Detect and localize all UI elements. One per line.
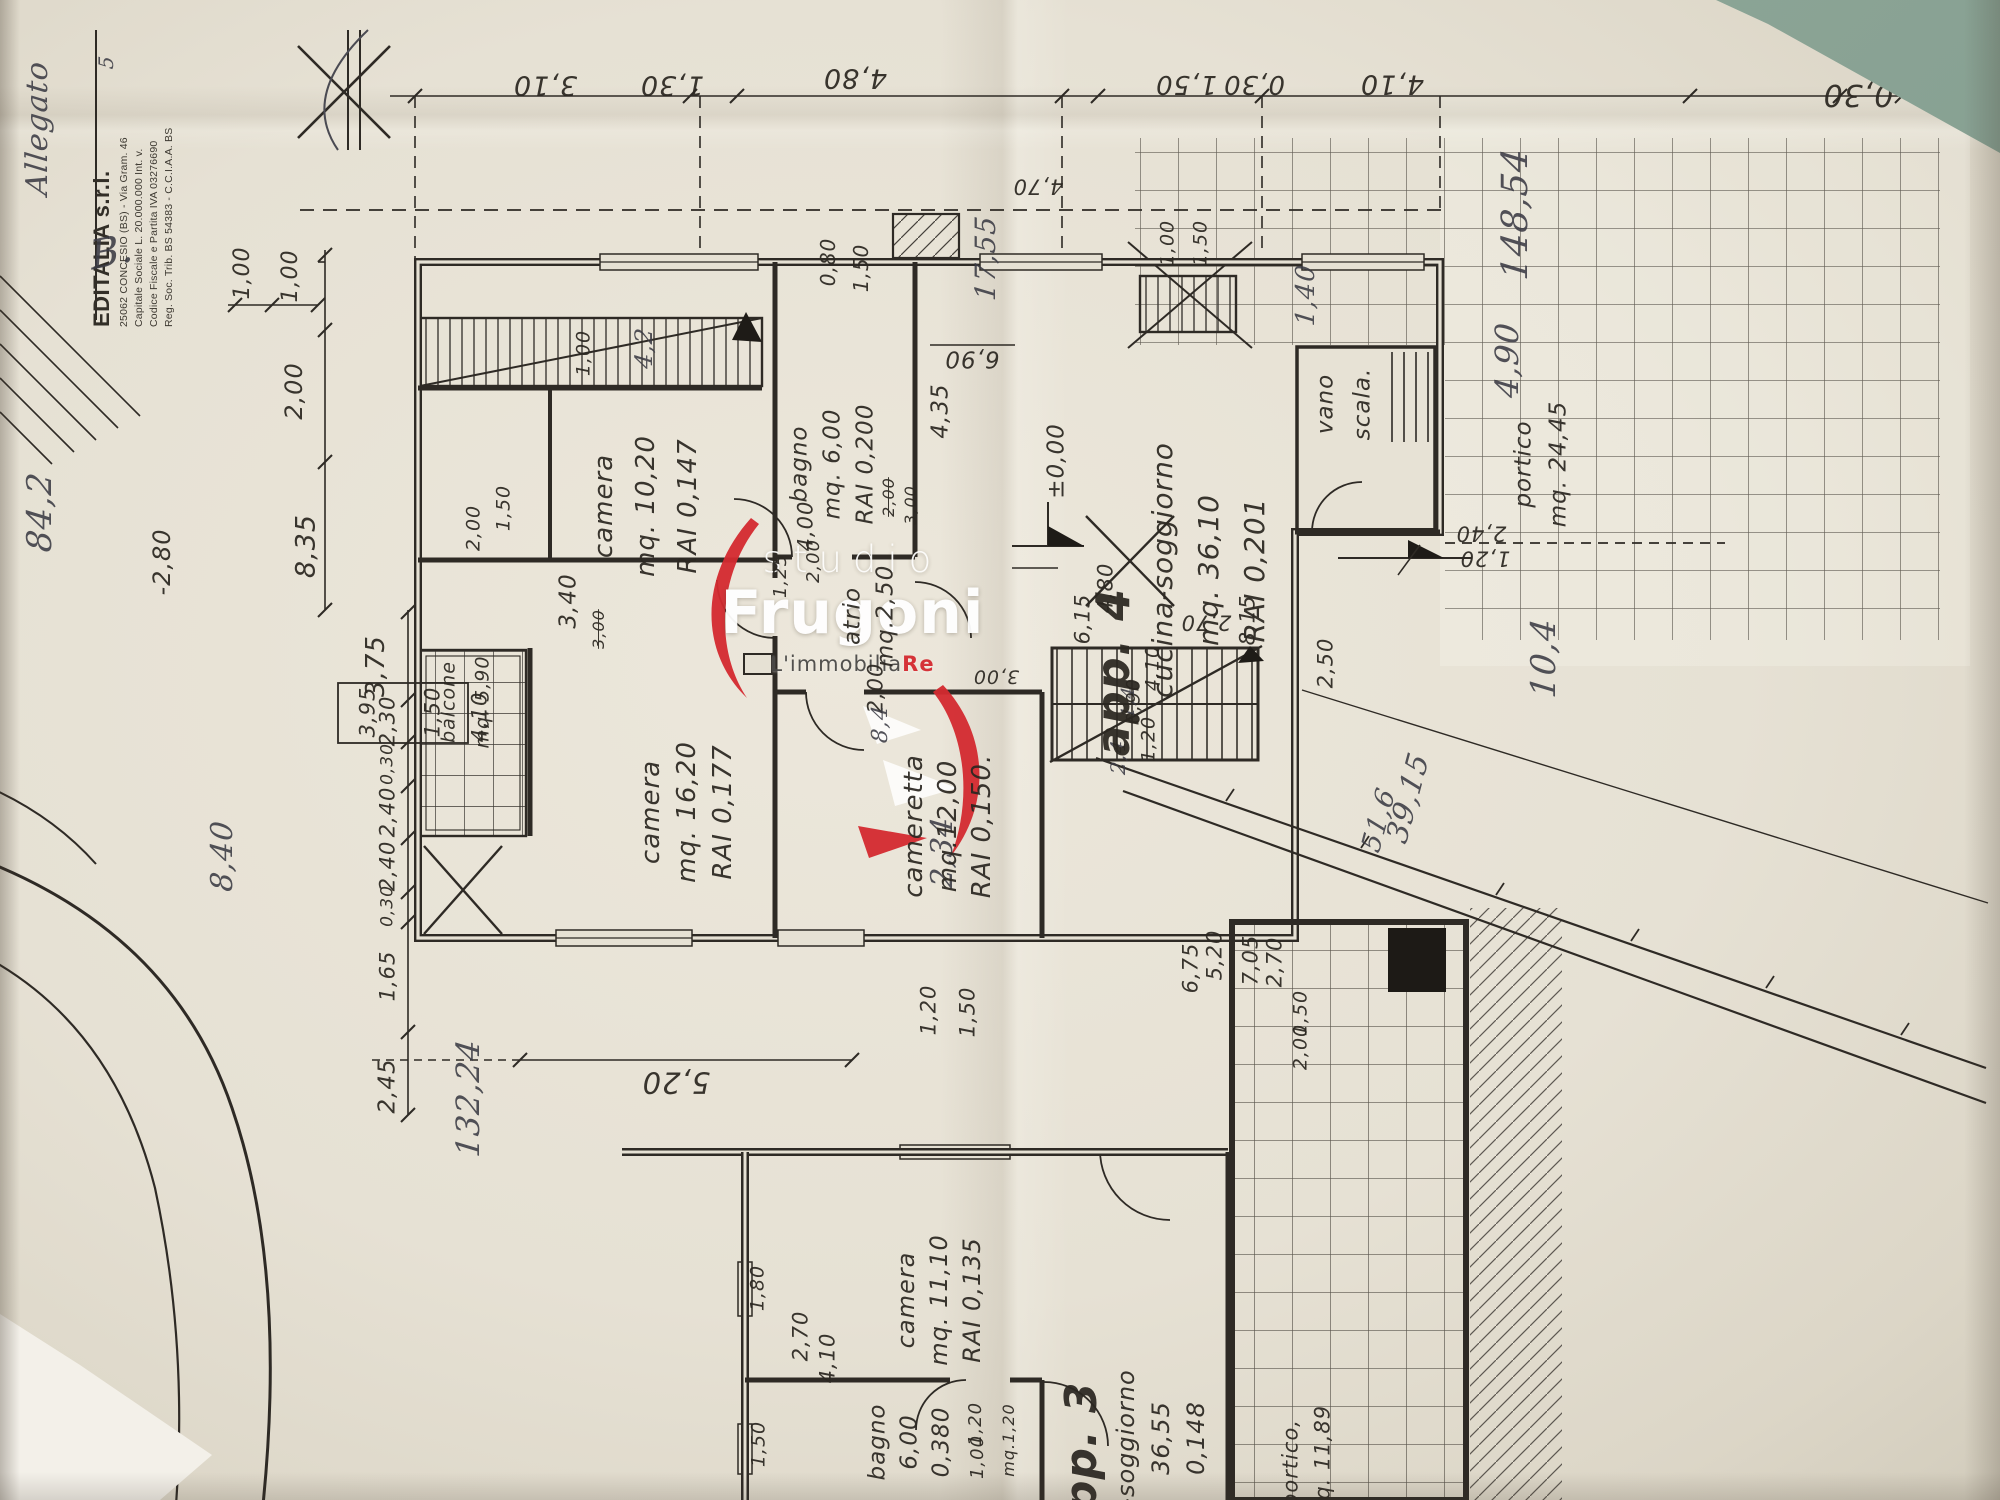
dimension-label: 1,20: [1140, 716, 1159, 762]
dimension-label: 3,95: [358, 687, 379, 738]
dimension-label: 2,70: [1265, 937, 1286, 988]
portico-lower-tile-hatch: [1232, 922, 1466, 1500]
room-label-bagno: bagno: [789, 426, 812, 503]
dimension-label: 2,45: [377, 1058, 400, 1113]
room-label-portico-upper: mq. 24,45: [1548, 401, 1571, 527]
room-label-cameretta: RAI 0,150.: [969, 754, 995, 898]
room-label-bagno: mq. 6,00: [822, 409, 845, 520]
chimney-block: [893, 214, 959, 258]
handwritten-note: 8,4: [870, 704, 892, 744]
dimension-label: 3,40: [558, 573, 581, 628]
dimension-label: 4,00: [796, 501, 817, 552]
room-label-vano-scala: vano: [1315, 374, 1338, 434]
dimension-label: 2,00: [881, 477, 897, 517]
room-label-portico-upper: portico: [1513, 420, 1536, 507]
room-label-camera-11: RAI 0,135: [960, 1237, 984, 1363]
dimension-label: 2,50: [1316, 638, 1337, 689]
room-label-cameretta: mq.12,00: [935, 760, 961, 893]
handwritten-note: 4,2: [632, 326, 656, 370]
room-label-balcone: mq. 5,90: [474, 656, 493, 749]
dimension-label: 4,10: [818, 1333, 839, 1384]
handwritten-note: B.: [88, 227, 135, 276]
dimension-label: 1,50: [851, 244, 871, 293]
editalia-stamp: EDITALIA s.r.l. 25062 CONCESIO (BS) - Vi…: [89, 41, 241, 327]
handwritten-note: 17,55: [972, 214, 1000, 302]
dimension-label: 2,40: [1456, 523, 1507, 544]
handwritten-note: 4,90: [1491, 321, 1523, 400]
scan-shadow-right: [1964, 0, 2000, 1500]
dimension-label: 1,20: [919, 985, 940, 1036]
room-label-cucina-soggiorno: cucina-soggiorno: [1149, 442, 1177, 698]
dimension-label: 2,30: [378, 696, 399, 747]
dimension-label: 1,00: [280, 250, 302, 303]
dimension-label: 6,75: [1181, 943, 1202, 994]
room-label-cameretta: cameretta: [901, 754, 927, 898]
stamp-company: EDITALIA s.r.l.: [89, 41, 115, 327]
dimension-label: 3,00: [591, 609, 607, 649]
dimension-label: 1,50: [1155, 71, 1217, 97]
dimension-label: 1,50: [958, 987, 979, 1038]
dimension-label: 3,10: [513, 72, 577, 99]
room-label-bagno: RAI 0,200: [855, 404, 878, 525]
dimension-label: 8,35: [293, 514, 320, 578]
scan-shadow-left: [0, 0, 20, 1500]
handwritten-note: 8,40: [208, 819, 238, 893]
dimension-label: 4,10: [1360, 71, 1424, 98]
room-label-bagno-app3: bagno: [867, 1404, 890, 1481]
dimension-label: 2,00: [465, 505, 484, 551]
room-label-camera-16: camera: [638, 760, 664, 864]
dimension-label: mq.1,20: [1001, 1403, 1017, 1476]
scanned-floorplan-photo: EDITALIA s.r.l. 25062 CONCESIO (BS) - Vi…: [0, 0, 2000, 1500]
room-label-vano-scala: scala.: [1352, 368, 1375, 441]
dark-opening: [1388, 928, 1446, 992]
logo-studio-text: studio: [655, 538, 1050, 581]
grate: [1140, 276, 1236, 332]
room-label-atrio: mq.2,50: [875, 565, 898, 668]
dimension-label: 1,00: [1159, 220, 1178, 266]
room-label-soggiorno-app3: 0,148: [1184, 1401, 1208, 1475]
room-label-cucina-soggiorno: mq. 36,10: [1195, 494, 1223, 646]
handwritten-note: Allegato: [23, 60, 53, 197]
room-label-cucina-soggiorno: RAI 0,201: [1241, 498, 1269, 643]
dimension-label: 1,50: [750, 1421, 769, 1467]
dimension-label: 1,25: [772, 554, 790, 598]
dimension-label: ±0,00: [1046, 423, 1069, 498]
room-label-camera-16: mq. 16,20: [674, 741, 700, 883]
dimension-label: 4,70: [1013, 176, 1064, 197]
room-label-camera-10: camera: [591, 454, 617, 558]
room-label-soggiorno-app3: 36,55: [1149, 1401, 1173, 1475]
room-label-camera-11: camera: [894, 1252, 918, 1349]
dimension-label: 2,40: [378, 841, 399, 892]
dimension-label: 7,05: [1241, 935, 1262, 986]
dimension-label: 6,90: [944, 347, 999, 370]
stamp-address-lines: 25062 CONCESIO (BS) - Via Gram. 46Capita…: [118, 41, 175, 327]
dimension-label: 2,40: [378, 787, 399, 838]
dimension-label: 2,70: [791, 1311, 812, 1362]
stamp-line: Capitale Sociale L. 20.000.000 Int. v.: [133, 41, 145, 327]
room-label-balcone: balcone: [440, 661, 459, 743]
room-label-atrio: atrio: [842, 587, 865, 645]
dimension-label: 1,65: [378, 951, 399, 1002]
handwritten-note: 1,40: [1293, 263, 1319, 328]
dimension-label: 2,00: [1292, 1024, 1311, 1070]
scan-shadow-bottom: [0, 1472, 2000, 1500]
dimension-label: 3,00: [973, 667, 1019, 686]
handwritten-note: 132,24: [452, 1037, 484, 1158]
dimension-label: 5,20: [642, 1068, 711, 1097]
dimension-label: -2,80: [150, 528, 174, 595]
dimension-label: 2,00: [282, 362, 306, 419]
dimension-label: 1,80: [749, 1265, 768, 1311]
stamp-line: Reg. Soc. Trib. BS 54383 - C.C.I.A.A. BS: [163, 41, 175, 327]
room-label-camera-11: mq. 11,10: [927, 1234, 951, 1366]
dimension-label: 1,20: [1460, 548, 1511, 569]
dimension-label: 1,00: [232, 247, 254, 300]
handwritten-note: 10,4: [1527, 616, 1561, 699]
dimension-label: 1,00: [575, 330, 594, 376]
handwritten-note: 148,54: [1498, 146, 1534, 282]
room-label-bagno-app3: 0,380: [931, 1407, 954, 1478]
room-label-bagno-app3: 6,00: [899, 1414, 922, 1469]
dimension-label: 3,00: [903, 485, 919, 525]
dimension-label: 0,30: [380, 743, 397, 785]
dimension-label: 1,50: [495, 485, 514, 531]
dimension-label: 1,30: [640, 72, 704, 99]
dimension-label: 5,20: [1205, 930, 1226, 981]
handwritten-note: 5: [96, 54, 116, 70]
room-label-app4: app. 4: [1090, 588, 1136, 756]
diagonal-hatch-band: [1470, 908, 1562, 1500]
dimension-label: 0,30: [380, 885, 397, 927]
handwritten-note: 84,2: [23, 470, 57, 553]
dimension-label: 0,30: [1223, 71, 1285, 97]
dimension-label: 1,50: [1192, 220, 1211, 266]
stamp-line: Codice Fiscale e Partita IVA 03276690: [148, 41, 160, 327]
dimension-label: 4,80: [823, 65, 887, 92]
room-label-camera-10: mq. 10,20: [633, 435, 659, 577]
dimension-label: 4,35: [930, 383, 953, 438]
dimension-label: 0,80: [818, 238, 838, 287]
stamp-line: 25062 CONCESIO (BS) - Via Gram. 46: [118, 41, 130, 327]
room-label-camera-16: RAI 0,177: [710, 744, 736, 879]
room-label-camera-10: RAI 0,147: [675, 438, 701, 573]
logo-tagline-accent: Re: [902, 652, 934, 676]
